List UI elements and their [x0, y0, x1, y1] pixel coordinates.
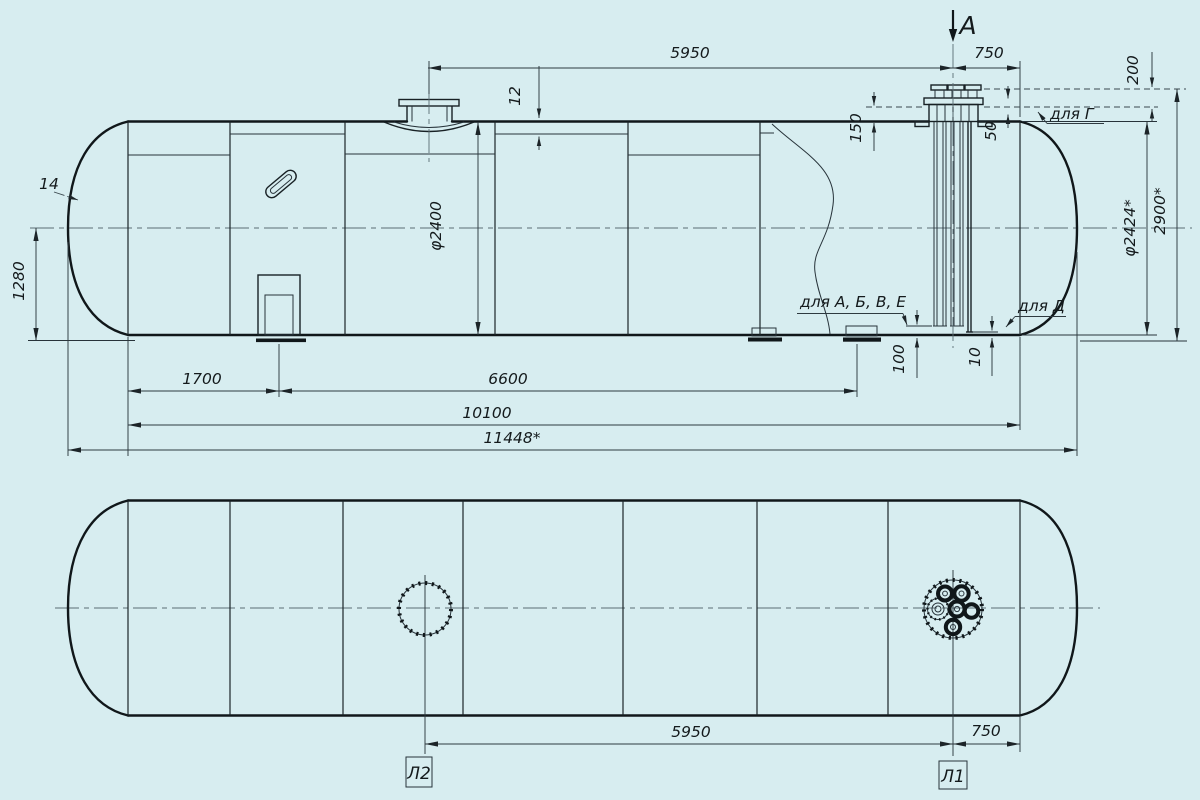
- drawing-sheet: А 5950 750 12 150 50: [0, 0, 1200, 800]
- dim-6600: 6600: [488, 370, 528, 388]
- note-for-d: для Д: [1017, 297, 1065, 315]
- dim-11448: 11448*: [483, 429, 540, 447]
- dim-14: 14: [39, 175, 59, 193]
- dim-12: 12: [506, 86, 524, 106]
- dim-10100: 10100: [462, 404, 511, 422]
- plan-dim-750: 750: [971, 722, 1001, 740]
- dim-10: 10: [966, 347, 984, 367]
- l2-label: Л2: [406, 764, 431, 784]
- dim-50: 50: [982, 121, 1000, 141]
- l1-label: Л1: [940, 767, 965, 787]
- tank-drawing: А 5950 750 12 150 50: [0, 0, 1200, 800]
- dim-200: 200: [1124, 55, 1142, 85]
- dim-1700: 1700: [182, 370, 222, 388]
- dim-750-top: 750: [974, 44, 1004, 62]
- dim-1280-label: 1280: [10, 261, 28, 301]
- plan-dim-5950: 5950: [671, 723, 711, 741]
- note-for-g: для Г: [1049, 105, 1095, 123]
- dim-100: 100: [890, 344, 908, 374]
- dim-2900: 2900*: [1151, 187, 1169, 234]
- section-label: А: [957, 11, 976, 40]
- note-for-abve: для А, Б, В, Е: [799, 293, 906, 311]
- dim-dia-2424: φ2424*: [1121, 199, 1139, 257]
- dim-5950-top: 5950: [670, 44, 710, 62]
- dim-150: 150: [847, 113, 865, 143]
- dim-dia-2400: φ2400: [427, 201, 445, 251]
